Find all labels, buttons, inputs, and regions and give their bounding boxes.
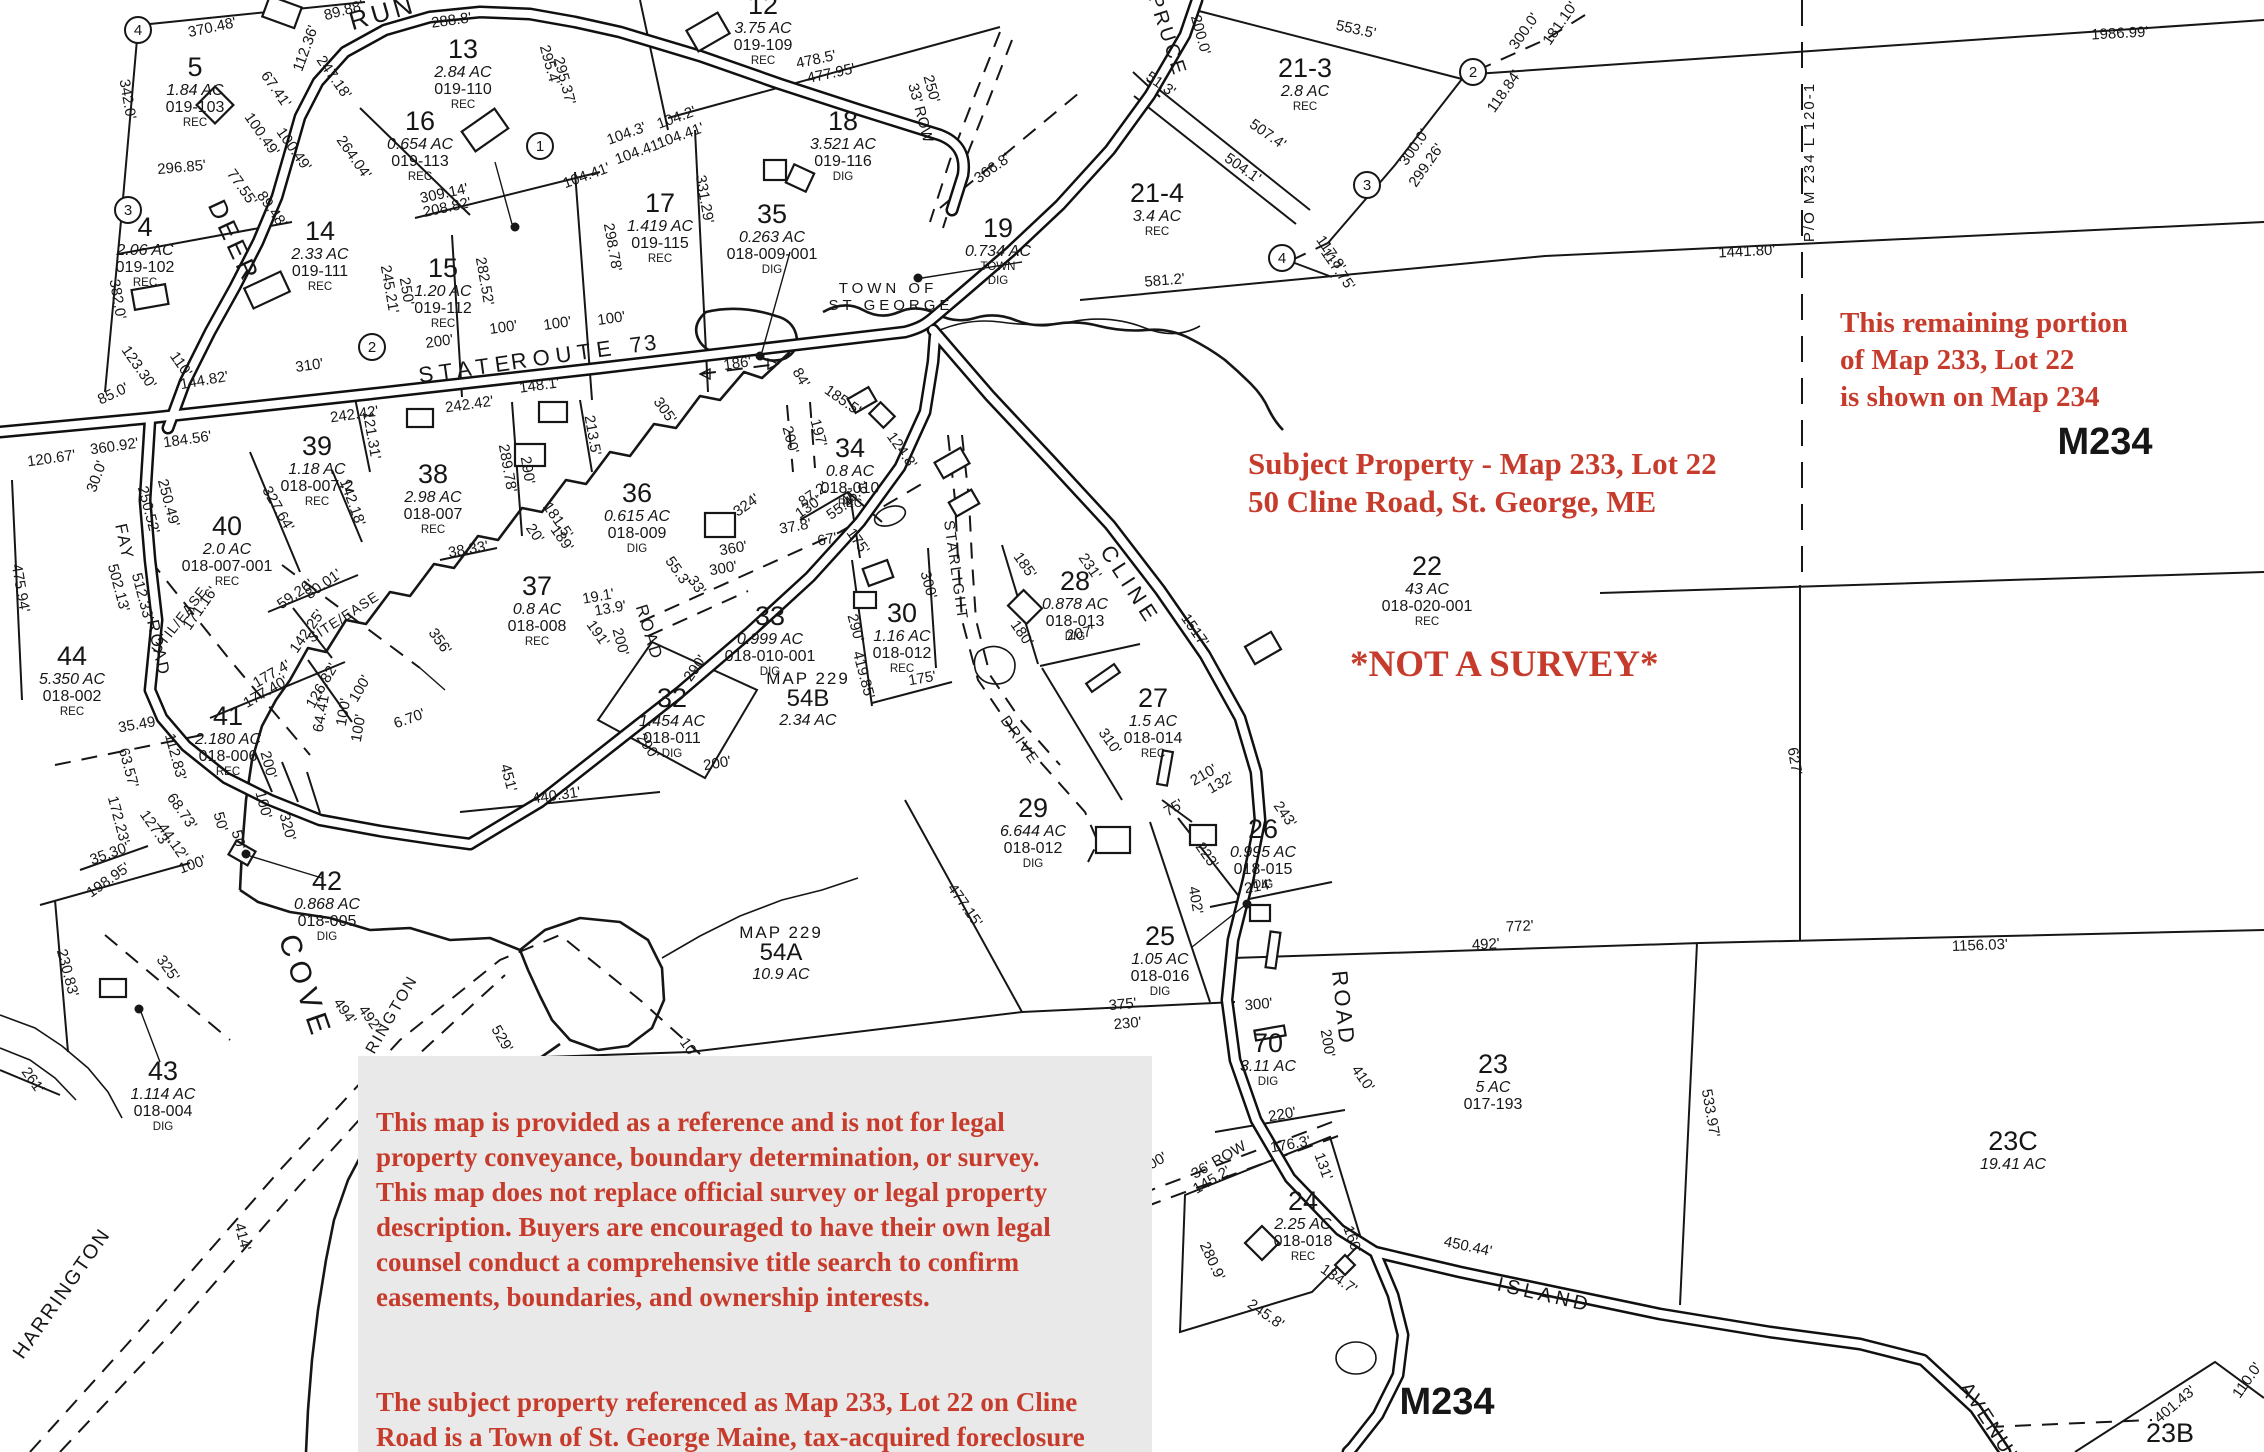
lot-source-tag: DIG xyxy=(1258,1076,1279,1088)
lot-parcel-id: 018-009 xyxy=(608,525,667,542)
dimension-label: 172.23' xyxy=(104,794,133,846)
lot-acreage: 0.995 AC xyxy=(1230,844,1297,861)
lot-parcel-id: 018-016 xyxy=(1131,968,1190,985)
lot-source-tag: REC xyxy=(431,318,455,330)
lot-acreage: 0.999 AC xyxy=(737,631,804,648)
dimension-label: 200' xyxy=(424,331,454,352)
dimension-label: 181.10' xyxy=(1539,0,1581,48)
dimension-label: 310' xyxy=(294,355,324,376)
lot-number: 30 xyxy=(887,598,917,628)
lot-number: 38 xyxy=(418,459,448,489)
circled-number-text: 1 xyxy=(536,138,544,155)
lot-acreage: 5 AC xyxy=(1476,1079,1511,1096)
dimension-label: 191' xyxy=(583,617,613,650)
lot-acreage: 2.0 AC xyxy=(202,541,252,558)
annotation-of-map-233-lot-22: of Map 233, Lot 22 xyxy=(1840,344,2074,376)
lot-source-tag: DIG xyxy=(762,264,783,276)
lot-number: 21-3 xyxy=(1278,53,1332,83)
lot-number: 34 xyxy=(835,433,865,463)
lot-parcel-id: 018-011 xyxy=(643,730,701,747)
circled-number-text: 2 xyxy=(368,339,376,356)
dimension-label: 507.4' xyxy=(1246,116,1289,153)
lot-number: 12 xyxy=(748,0,778,20)
lot-acreage: 0.263 AC xyxy=(739,229,806,246)
lot-source-tag: REC xyxy=(838,498,862,510)
disclaimer-box: This map is provided as a reference and … xyxy=(358,1056,1152,1452)
annotation--not-a-survey-: *NOT A SURVEY* xyxy=(1350,644,1658,685)
annotation-50-cline-road-st-george-me: 50 Cline Road, St. George, ME xyxy=(1248,484,1656,519)
lot-number: 70 xyxy=(1253,1028,1283,1058)
road-label-road: ROAD xyxy=(632,602,667,662)
lot-source-tag: REC xyxy=(183,117,207,129)
lot-parcel-id: 019-116 xyxy=(814,153,872,170)
road-label-cove: COVE xyxy=(272,930,339,1044)
lot-source-tag: DIG xyxy=(1253,879,1274,891)
dimension-label: 67' xyxy=(816,529,838,549)
lot-number: 23C xyxy=(1988,1126,2038,1156)
lot-parcel-id: 018-018 xyxy=(1274,1233,1333,1250)
dimension-label: 290' xyxy=(517,455,539,486)
dimension-label: 451' xyxy=(497,762,521,793)
lot-parcel-id: 019-102 xyxy=(116,259,175,276)
dimension-label: 331.29' xyxy=(692,174,717,225)
dimension-label: 772' xyxy=(1505,917,1534,935)
dimension-label: 67.41' xyxy=(257,68,294,111)
dimension-label: 300' xyxy=(708,558,739,580)
lot-acreage: 2.8 AC xyxy=(1280,83,1330,100)
lot-source-tag: DIG xyxy=(317,931,338,943)
lot-source-tag: REC xyxy=(1415,616,1439,628)
dimension-label: 360.92' xyxy=(89,435,140,459)
lot-source-tag: DIG xyxy=(988,275,1009,287)
lot-parcel-id: 019-109 xyxy=(734,37,793,54)
lot-source-tag: REC xyxy=(308,281,332,293)
lot-acreage: 2.180 AC xyxy=(194,731,262,748)
lot-number: 35 xyxy=(757,199,787,229)
dimension-label: 50' xyxy=(210,810,232,833)
lot-acreage: 2.06 AC xyxy=(115,242,174,259)
dimension-label: 35.49' xyxy=(117,713,160,737)
dimension-label: 375' xyxy=(1108,995,1137,1014)
lot-source-tag: REC xyxy=(408,171,432,183)
dimension-label: 370.48' xyxy=(186,14,237,41)
lot-source-tag: REC xyxy=(525,636,549,648)
dimension-label: 298.78' xyxy=(600,222,625,273)
dimension-label: 300' xyxy=(1244,995,1273,1014)
annotation-m234: M234 xyxy=(2057,421,2152,463)
dimension-label: 300.0' xyxy=(1506,10,1543,53)
lot-number: 40 xyxy=(212,511,242,541)
dimension-label: 160' xyxy=(1339,1223,1365,1255)
lot-acreage: 19.41 AC xyxy=(1980,1156,2047,1173)
dimension-label: 282.52' xyxy=(472,256,497,307)
dimension-label: 220' xyxy=(1267,1104,1298,1126)
lot-number: 15 xyxy=(428,253,458,283)
dimension-label: 100' xyxy=(488,317,518,338)
lot-source-tag: REC xyxy=(1291,1251,1315,1263)
dimension-label: 529' xyxy=(488,1022,517,1055)
lot-source-tag: DIG xyxy=(1023,858,1044,870)
lot-source-tag: REC xyxy=(421,524,445,536)
lot-acreage: 0.734 AC xyxy=(965,243,1032,260)
lot-parcel-id: 019-110 xyxy=(434,81,492,98)
lot-parcel-id: 018-020-001 xyxy=(1382,598,1473,615)
lot-acreage: 1.05 AC xyxy=(1131,951,1189,968)
lot-source-tag: REC xyxy=(890,663,914,675)
lot-acreage: 1.16 AC xyxy=(873,628,931,645)
road-label-starlight: STARLIGHT xyxy=(940,519,971,621)
map229-ref-acreage: 2.34 AC xyxy=(778,712,837,729)
dimension-label: 85.0' xyxy=(95,379,131,408)
annotation-subject-property-map-233-lot-2: Subject Property - Map 233, Lot 22 xyxy=(1248,446,1717,481)
dimension-label: 402' xyxy=(1185,885,1207,916)
lot-number: 24 xyxy=(1288,1186,1318,1216)
dimension-label: 300' xyxy=(917,569,941,600)
lot-parcel-id: 018-007 xyxy=(404,506,463,523)
dimension-label: 63.57' xyxy=(115,746,142,790)
dimension-label: 100' xyxy=(596,308,626,329)
dimension-label: 533.97' xyxy=(1698,1088,1723,1139)
dimension-label: 197' xyxy=(807,417,831,448)
lot-acreage: 2.98 AC xyxy=(403,489,462,506)
dimension-label: 290' xyxy=(844,612,868,643)
dimension-label: 492' xyxy=(1471,935,1500,953)
lot-acreage: 1.18 AC xyxy=(288,461,346,478)
dimension-label: 186' xyxy=(722,353,752,374)
lot-source-tag: DIG xyxy=(1065,631,1086,643)
lot-number: 4 xyxy=(137,212,152,242)
dimension-label: 38.33' xyxy=(447,538,490,562)
lot-acreage: 0.8 AC xyxy=(826,463,875,480)
dimension-label: 230' xyxy=(1113,1014,1142,1033)
circled-number-text: 3 xyxy=(124,202,132,219)
lot-acreage: 0.654 AC xyxy=(387,136,454,153)
dimension-label: 131' xyxy=(1310,1150,1336,1182)
dimension-label: 450.44' xyxy=(1442,1233,1493,1260)
circled-number-text: 2 xyxy=(1469,64,1477,81)
lot-number: 43 xyxy=(148,1056,178,1086)
dimension-label: 200' xyxy=(257,749,281,780)
dimension-label: 360' xyxy=(718,538,749,560)
dimension-label: 185' xyxy=(1010,549,1040,582)
disclaimer-paragraph-2: The subject property referenced as Map 2… xyxy=(376,1385,1152,1452)
lot-parcel-id: 019-115 xyxy=(631,235,689,252)
lot-acreage: 3.521 AC xyxy=(810,136,877,153)
lot-parcel-id: 018-012 xyxy=(1004,840,1063,857)
lot-number: 27 xyxy=(1138,683,1168,713)
lot-number: 29 xyxy=(1018,793,1048,823)
lot-source-tag: DIG xyxy=(153,1121,174,1133)
lot-source-tag: DIG xyxy=(627,543,648,555)
lot-parcel-id: 018-007-2 xyxy=(281,478,354,495)
lot-source-tag: REC xyxy=(1141,748,1165,760)
dimension-label: 475.94' xyxy=(8,563,33,614)
lot-parcel-id: 018-012 xyxy=(873,645,932,662)
lot-source-tag: DIG xyxy=(833,171,854,183)
lot-parcel-id: 019-112 xyxy=(414,300,472,317)
lot-parcel-id: 018-014 xyxy=(1124,730,1183,747)
lot-source-tag: REC xyxy=(133,277,157,289)
lot-source-tag: DIG xyxy=(662,748,683,760)
dimension-label: 342.0' xyxy=(116,78,140,121)
map229-ref-lot: 54A xyxy=(760,939,803,966)
dimension-label: 627' xyxy=(1784,746,1806,777)
annotation-m234: M234 xyxy=(1399,1381,1494,1423)
lot-acreage: 1.84 AC xyxy=(166,82,224,99)
dimension-label: 296.85' xyxy=(157,157,207,178)
circled-number-text: 4 xyxy=(134,22,142,39)
lot-number: 42 xyxy=(312,866,342,896)
dimension-label: 310' xyxy=(1095,725,1125,758)
dimension-label: 118.84' xyxy=(1484,67,1525,116)
annotation-is-shown-on-map-234: is shown on Map 234 xyxy=(1840,381,2099,413)
lot-parcel-id: 019-103 xyxy=(166,99,225,116)
dimension-label: 84' xyxy=(789,365,814,391)
lot-number: 25 xyxy=(1145,921,1175,951)
dimension-label: 20' xyxy=(522,521,547,547)
road-label-fay: FAY xyxy=(111,522,137,562)
lot-number: 39 xyxy=(302,431,332,461)
lot-parcel-id: 017-193 xyxy=(1464,1096,1523,1113)
dimension-label: 1441.80' xyxy=(1718,242,1776,262)
lot-number: 21-4 xyxy=(1130,178,1184,208)
dimension-label: 1156.03' xyxy=(1952,936,2009,955)
lot-acreage: 2.84 AC xyxy=(433,64,492,81)
dimension-label: 366.8' xyxy=(971,150,1014,187)
lot-number: 13 xyxy=(448,34,478,64)
dimension-label: 6.70' xyxy=(391,705,427,732)
dimension-label: 230.83' xyxy=(53,947,82,999)
lot-source-tag: REC xyxy=(648,253,672,265)
dimension-label: 305' xyxy=(650,394,680,427)
dimension-label: 410' xyxy=(1348,1062,1378,1095)
map-reference-labels: MAP 22954B2.34 ACMAP 22954A10.9 AC xyxy=(739,669,850,983)
lot-number: 19 xyxy=(983,213,1013,243)
dimension-label: 30.0' xyxy=(83,458,110,494)
annotation-st-george: ST GEORGE xyxy=(829,297,954,314)
dimension-label: 356' xyxy=(425,625,455,658)
lot-parcel-id: 018-007-001 xyxy=(182,558,273,575)
map229-ref-lot: 54B xyxy=(787,685,830,712)
dimension-label: 414' xyxy=(231,1221,255,1252)
lot-parcel-id: 018-008 xyxy=(508,618,567,635)
lot-parcel-id: 018-015 xyxy=(1234,861,1293,878)
lot-acreage: 0.878 AC xyxy=(1042,596,1109,613)
lot-number: 23B xyxy=(2146,1418,2194,1448)
circled-number-text: 4 xyxy=(1278,250,1286,267)
lot-source-tag: REC xyxy=(215,576,239,588)
tax-map-page: 4321234 370.48'342.0'296.85'382.0'85.0'1… xyxy=(0,0,2264,1452)
road-label-island: ISLAND xyxy=(1495,1274,1594,1317)
lot-source-tag: REC xyxy=(751,55,775,67)
lot-acreage: 1.20 AC xyxy=(414,283,472,300)
lot-parcel-id: 018-005 xyxy=(298,913,357,930)
lot-acreage: 1.419 AC xyxy=(627,218,694,235)
lot-source-tag: REC xyxy=(60,706,84,718)
dimension-label: 200' xyxy=(779,424,803,455)
dimension-label: 120.67' xyxy=(26,447,77,471)
road-label-73: 73 xyxy=(628,329,660,358)
dimension-label: 1986.99' xyxy=(2091,24,2149,44)
annotation-town-of: TOWN OF xyxy=(839,280,938,297)
lot-number: 44 xyxy=(57,641,87,671)
dimension-label: 242.42' xyxy=(444,393,495,417)
dimension-label: 37.8' xyxy=(778,515,813,537)
lot-parcel-id: 018-009-001 xyxy=(727,246,818,263)
dimension-label: 75' xyxy=(1161,796,1187,821)
road-label-drive: DRIVE xyxy=(997,713,1043,768)
circled-number-text: 3 xyxy=(1363,177,1371,194)
lot-number: 22 xyxy=(1412,551,1442,581)
dimension-label: 502.13' xyxy=(104,562,133,614)
lot-source-tag: DIG xyxy=(1150,986,1171,998)
lot-acreage: 3.11 AC xyxy=(1240,1058,1296,1075)
lot-number: 37 xyxy=(522,571,552,601)
lot-parcel-id: 018-010-001 xyxy=(725,648,816,665)
lot-number: 26 xyxy=(1248,814,1278,844)
lot-parcel-id: 018-004 xyxy=(134,1103,193,1120)
dimension-label: 553.5' xyxy=(1334,17,1377,42)
lot-acreage: 1.5 AC xyxy=(1129,713,1178,730)
lot-source-tag: REC xyxy=(1293,101,1317,113)
lot-number: 23 xyxy=(1478,1049,1508,1079)
disclaimer-paragraph-1: This map is provided as a reference and … xyxy=(376,1105,1152,1315)
dimension-label: 176.3' xyxy=(1269,1133,1312,1157)
lot-parcel-id: 018-010 xyxy=(821,480,880,497)
dimension-label: 200' xyxy=(702,753,733,775)
dimension-label: 440.31' xyxy=(531,784,582,808)
lot-number: 5 xyxy=(187,52,202,82)
dimension-label: 280.9' xyxy=(1196,1239,1229,1283)
dimension-label: 382.0' xyxy=(106,278,130,321)
road-label-harrington: HARRINGTON xyxy=(9,1224,115,1363)
lot-parcel-id: 018-013 xyxy=(1046,613,1105,630)
road-label-avenue: AVENUE xyxy=(1955,1378,2027,1452)
lot-source-tag: REC xyxy=(305,496,329,508)
lot-acreage: 1.454 AC xyxy=(639,713,706,730)
dimension-label: 10 xyxy=(676,1035,699,1058)
lot-number: 18 xyxy=(828,106,858,136)
lot-number: 28 xyxy=(1060,566,1090,596)
lot-acreage: 0.868 AC xyxy=(294,896,361,913)
lot-source-tag: REC xyxy=(451,99,475,111)
lot-number: 17 xyxy=(645,188,675,218)
lot-acreage: 3.75 AC xyxy=(734,20,792,37)
annotation-this-remaining-portion: This remaining portion xyxy=(1840,307,2128,339)
lot-acreage: 2.33 AC xyxy=(290,246,349,263)
lot-acreage: 6.644 AC xyxy=(1000,823,1067,840)
lot-acreage: 0.615 AC xyxy=(604,508,671,525)
lot-acreage: 43 AC xyxy=(1405,581,1449,598)
annotation-p-o-m-234-l-120-1: P/O M 234 L 120-1 xyxy=(1801,82,1818,242)
lot-number: 16 xyxy=(405,106,435,136)
dimension-label: 200' xyxy=(609,626,633,657)
lot-parcel-id: 018-006 xyxy=(199,748,258,765)
dimension-label: 477.15' xyxy=(944,881,986,931)
lot-parcel-id: 019-111 xyxy=(292,263,348,280)
lot-parcel-id: 018-002 xyxy=(43,688,102,705)
lot-number: 33 xyxy=(755,601,785,631)
lot-acreage: 5.350 AC xyxy=(39,671,106,688)
lot-source-tag: REC xyxy=(216,766,240,778)
lot-number: 32 xyxy=(657,683,687,713)
dimension-label: 100' xyxy=(542,313,572,334)
lot-number: 41 xyxy=(213,701,243,731)
dimension-label: 104.41' xyxy=(561,159,613,192)
lot-acreage: 1.114 AC xyxy=(131,1086,196,1103)
lot-source-tag: TOWN xyxy=(981,261,1016,273)
lot-acreage: 3.4 AC xyxy=(1133,208,1182,225)
dimension-label: 100' xyxy=(348,713,370,744)
dimension-label: 581.2' xyxy=(1144,270,1186,290)
dimension-label: 185.5' xyxy=(821,382,864,419)
map229-ref-acreage: 10.9 AC xyxy=(752,966,810,983)
dimension-label: 213.5' xyxy=(581,414,605,457)
lot-parcel-id: 019-113 xyxy=(391,153,449,170)
lot-acreage: 2.25 AC xyxy=(1273,1216,1332,1233)
dimension-label: 264.04' xyxy=(333,133,375,183)
lot-source-tag: REC xyxy=(1145,226,1169,238)
lot-number: 36 xyxy=(622,478,652,508)
lot-number: 14 xyxy=(305,216,335,246)
lot-acreage: 0.8 AC xyxy=(513,601,562,618)
